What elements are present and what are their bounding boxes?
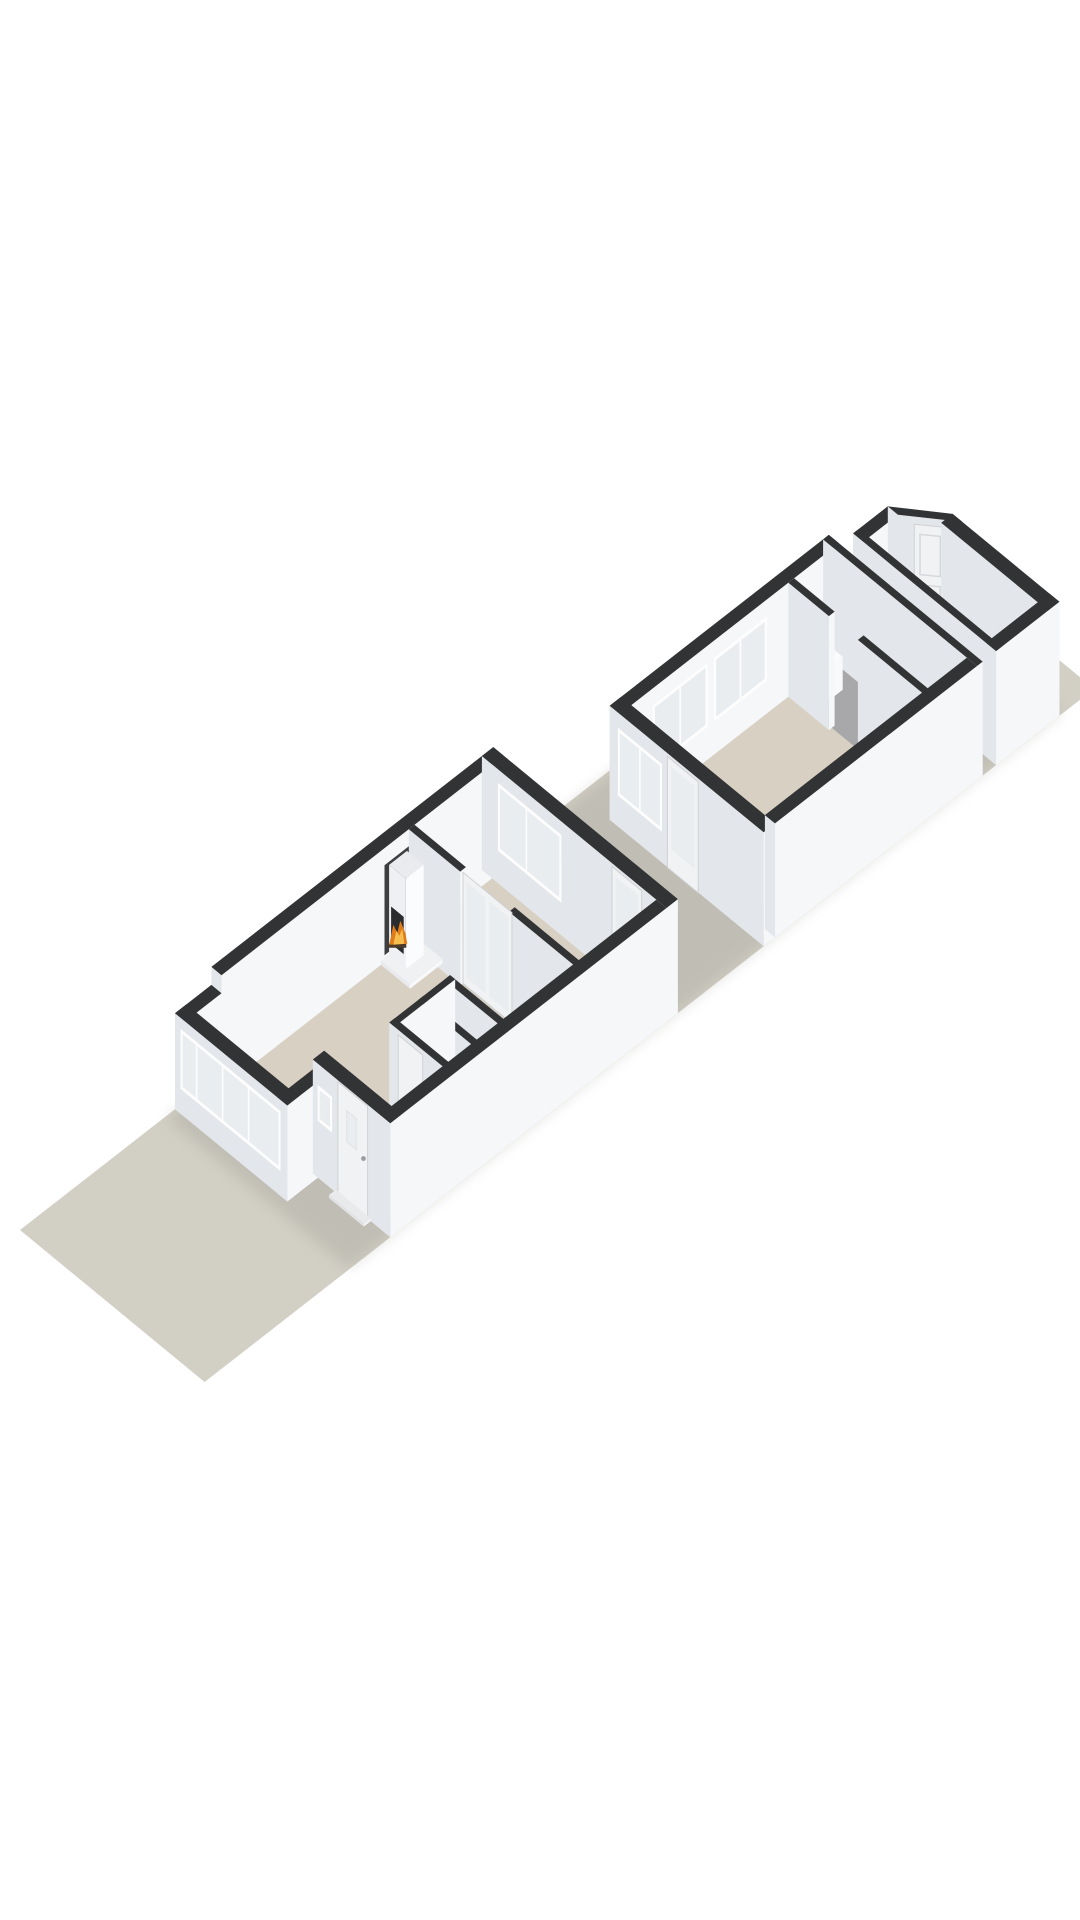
floor-plan-viewport bbox=[0, 0, 1080, 1920]
floor-plan-3d bbox=[0, 0, 1080, 1920]
